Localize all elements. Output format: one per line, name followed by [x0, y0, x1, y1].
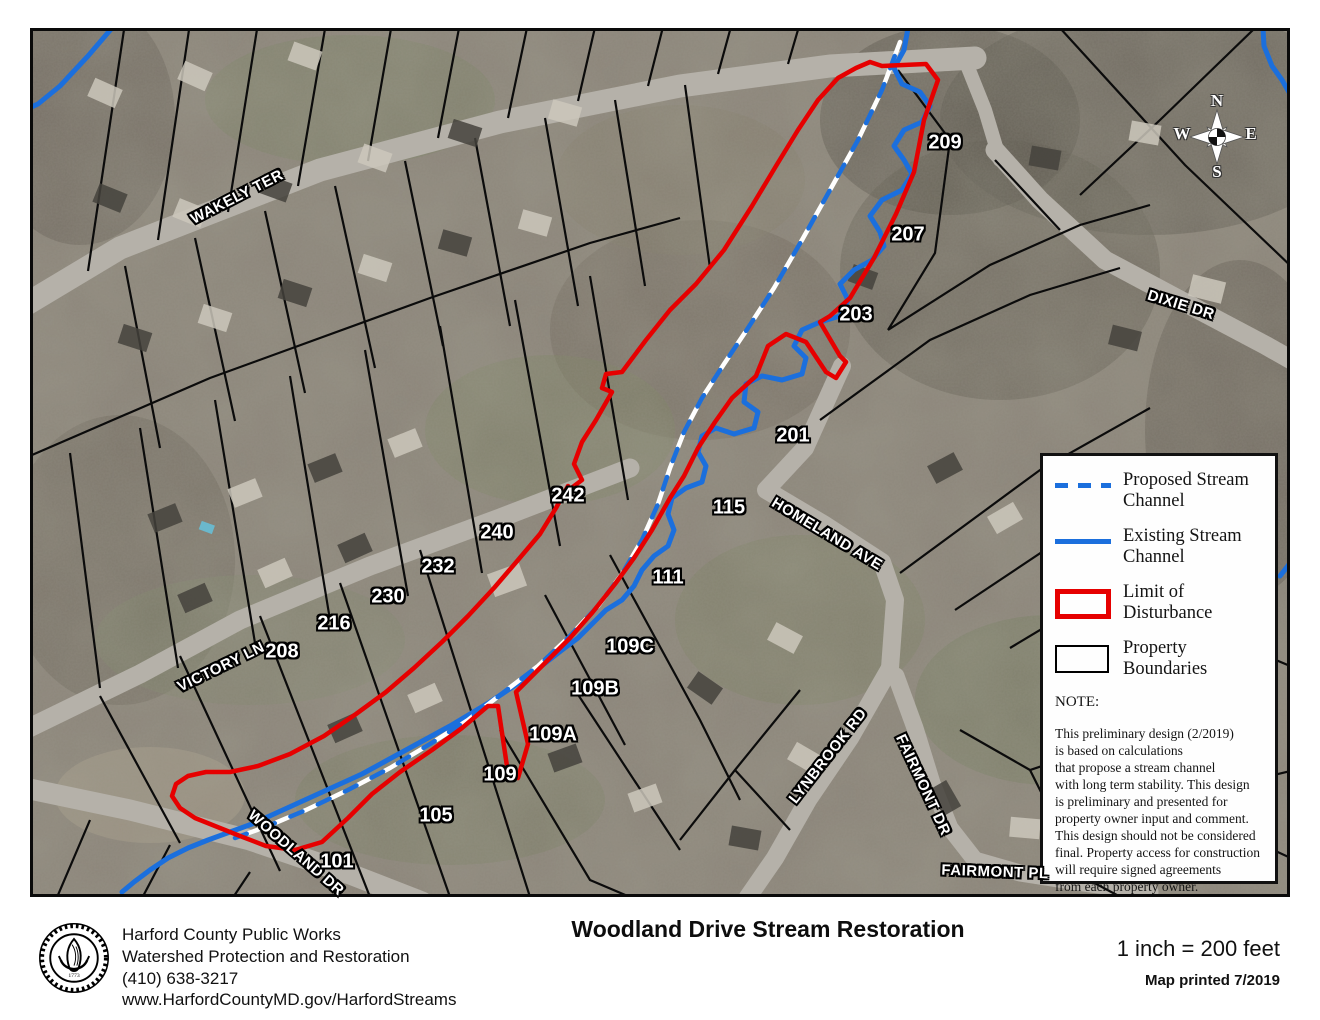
- legend-item-label: Property Boundaries: [1123, 638, 1207, 681]
- limit-of-disturbance-swatch-icon: [1055, 589, 1111, 619]
- svg-text:1773: 1773: [68, 973, 80, 979]
- legend-item-label: Limit of Disturbance: [1123, 582, 1212, 625]
- existing-stream-swatch-icon: [1055, 533, 1111, 544]
- legend-box: Proposed Stream Channel Existing Stream …: [1040, 453, 1278, 884]
- legend-item-proposed-stream: Proposed Stream Channel: [1055, 470, 1265, 513]
- scale-text: 1 inch = 200 feet: [1117, 936, 1280, 962]
- proposed-stream-swatch-icon: [1055, 477, 1111, 488]
- harford-county-seal: 1773: [36, 920, 112, 996]
- map-canvas: Proposed Stream Channel Existing Stream …: [30, 28, 1290, 897]
- note-text: This preliminary design (2/2019) is base…: [1055, 725, 1265, 895]
- printed-date: Map printed 7/2019: [1145, 972, 1280, 989]
- map-title: Woodland Drive Stream Restoration: [571, 916, 964, 943]
- agency-info: Harford County Public Works Watershed Pr…: [122, 924, 456, 1011]
- map-sheet: Proposed Stream Channel Existing Stream …: [0, 0, 1320, 1020]
- legend-item-existing-stream: Existing Stream Channel: [1055, 526, 1265, 569]
- note-heading: NOTE:: [1055, 694, 1265, 711]
- property-boundaries-swatch-icon: [1055, 645, 1111, 673]
- legend-item-limit-of-disturbance: Limit of Disturbance: [1055, 582, 1265, 625]
- legend-item-label: Existing Stream Channel: [1123, 526, 1242, 569]
- legend-item-label: Proposed Stream Channel: [1123, 470, 1249, 513]
- legend-item-property-boundaries: Property Boundaries: [1055, 638, 1265, 681]
